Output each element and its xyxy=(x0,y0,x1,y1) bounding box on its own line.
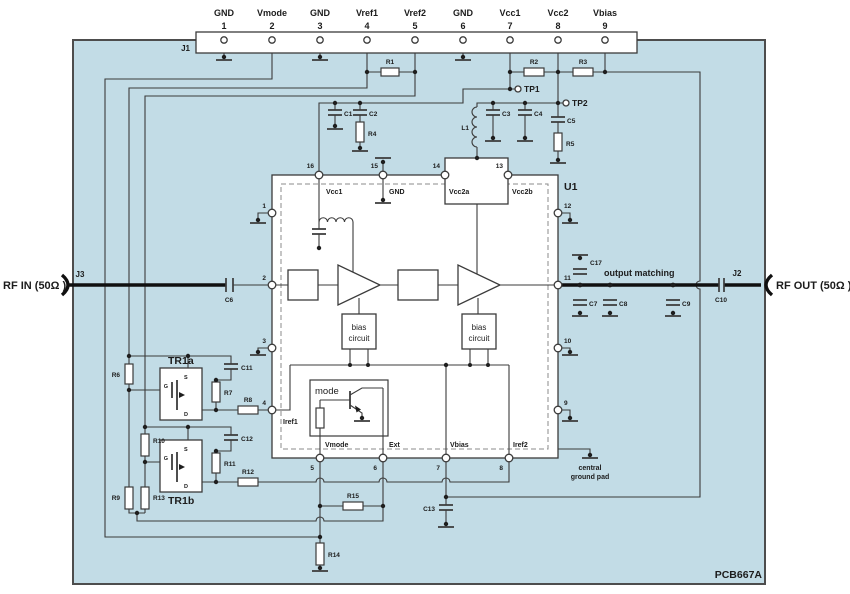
rf-in-label: RF IN (50Ω ) xyxy=(3,280,67,292)
svg-text:R4: R4 xyxy=(368,131,377,138)
svg-text:8: 8 xyxy=(499,465,503,472)
board-ref: PCB667A xyxy=(715,569,763,581)
svg-text:Ext: Ext xyxy=(389,442,401,449)
ic-u1 xyxy=(272,158,558,458)
resistor-r11 xyxy=(212,453,220,473)
svg-text:7: 7 xyxy=(436,465,440,472)
svg-text:1: 1 xyxy=(262,203,266,210)
svg-text:13: 13 xyxy=(496,163,504,170)
resistor-r15 xyxy=(343,502,363,510)
resistor-r12 xyxy=(238,478,258,486)
svg-text:S: S xyxy=(184,447,188,453)
svg-text:C17: C17 xyxy=(590,260,602,267)
svg-text:R5: R5 xyxy=(566,141,575,148)
svg-text:R9: R9 xyxy=(112,495,121,502)
svg-text:16: 16 xyxy=(307,163,315,170)
j1-pin-num: 6 xyxy=(460,21,465,31)
resistor-r10 xyxy=(141,434,149,456)
resistor-r3 xyxy=(573,68,593,76)
svg-text:4: 4 xyxy=(262,400,266,407)
svg-text:C5: C5 xyxy=(567,118,576,125)
svg-text:R7: R7 xyxy=(224,390,233,397)
svg-text:Vcc2a: Vcc2a xyxy=(449,189,469,196)
svg-text:14: 14 xyxy=(433,163,441,170)
j1-pin-num: 2 xyxy=(269,21,274,31)
svg-text:C7: C7 xyxy=(589,301,598,308)
svg-text:C3: C3 xyxy=(502,111,511,118)
j1-pin-name: Vbias xyxy=(593,8,617,18)
svg-text:10: 10 xyxy=(564,338,572,345)
j1-pin-name: Vref2 xyxy=(404,8,426,18)
svg-text:3: 3 xyxy=(262,338,266,345)
j2-ref: J2 xyxy=(733,269,742,278)
svg-text:L1: L1 xyxy=(461,125,469,132)
j1-pin-num: 5 xyxy=(412,21,417,31)
interstage-block xyxy=(398,270,438,300)
resistor-r8 xyxy=(238,406,258,414)
svg-text:D: D xyxy=(184,412,188,418)
transistor-tr1a xyxy=(160,368,202,420)
resistor-r6 xyxy=(125,364,133,384)
svg-text:ground pad: ground pad xyxy=(571,474,610,481)
j3-ref: J3 xyxy=(76,270,85,279)
svg-text:bias: bias xyxy=(472,323,487,332)
resistor-r14 xyxy=(316,543,324,565)
rf-out-connector-icon xyxy=(766,275,772,295)
svg-text:15: 15 xyxy=(371,163,379,170)
svg-text:2: 2 xyxy=(262,275,266,282)
svg-text:C6: C6 xyxy=(225,297,234,304)
svg-text:C2: C2 xyxy=(369,111,378,118)
svg-text:G: G xyxy=(164,384,168,390)
svg-text:central: central xyxy=(579,465,602,472)
mode-label: mode xyxy=(315,386,339,397)
svg-text:5: 5 xyxy=(310,465,314,472)
svg-text:R15: R15 xyxy=(347,493,359,500)
j1-ref: J1 xyxy=(181,44,190,53)
j1-pin-num: 1 xyxy=(221,21,226,31)
svg-text:9: 9 xyxy=(564,400,568,407)
svg-text:Vmode: Vmode xyxy=(325,442,348,449)
j1-pin-name: GND xyxy=(214,8,235,18)
svg-text:C9: C9 xyxy=(682,301,691,308)
j1-pin-num: 8 xyxy=(555,21,560,31)
svg-text:R8: R8 xyxy=(244,397,253,404)
svg-text:C11: C11 xyxy=(241,365,253,372)
output-matching-label: output matching xyxy=(604,268,675,278)
resistor-r4 xyxy=(356,122,364,142)
schematic-page: GND1 Vmode2 GND3 Vref14 Vref25 GND6 Vcc1… xyxy=(0,0,850,594)
j1-pin-name: GND xyxy=(310,8,331,18)
j1-pin-num: 7 xyxy=(507,21,512,31)
svg-text:GND: GND xyxy=(389,189,405,196)
svg-text:R14: R14 xyxy=(328,552,340,559)
transistor-tr1b xyxy=(160,440,202,492)
tp2-pad xyxy=(563,100,569,106)
svg-text:R12: R12 xyxy=(242,469,254,476)
svg-text:C4: C4 xyxy=(534,111,543,118)
tr1a-label: TR1a xyxy=(168,355,194,367)
ic-body xyxy=(272,175,558,458)
j1-pin-name: GND xyxy=(453,8,474,18)
ic-ref: U1 xyxy=(564,181,578,193)
resistor-r7 xyxy=(212,382,220,402)
svg-text:circuit: circuit xyxy=(349,334,371,343)
j1-pin-name: Vmode xyxy=(257,8,287,18)
mode-resistor xyxy=(316,408,324,428)
svg-text:R10: R10 xyxy=(153,438,165,445)
j1-pin-name: Vcc2 xyxy=(547,8,568,18)
resistor-r9 xyxy=(125,487,133,509)
j1-pin-num: 4 xyxy=(364,21,369,31)
svg-text:Iref2: Iref2 xyxy=(513,442,528,449)
resistor-r1 xyxy=(381,68,399,76)
svg-text:R11: R11 xyxy=(224,461,236,468)
svg-text:R2: R2 xyxy=(530,59,539,66)
svg-text:G: G xyxy=(164,456,168,462)
resistor-r2 xyxy=(524,68,544,76)
svg-text:S: S xyxy=(184,375,188,381)
svg-text:R6: R6 xyxy=(112,372,121,379)
tp1-pad xyxy=(515,86,521,92)
j1-pin-name: Vref1 xyxy=(356,8,378,18)
svg-text:bias: bias xyxy=(352,323,367,332)
svg-text:D: D xyxy=(184,484,188,490)
svg-text:C13: C13 xyxy=(423,506,435,513)
rf-out-label: RF OUT (50Ω ) xyxy=(776,280,850,292)
svg-text:Vcc1: Vcc1 xyxy=(326,189,342,196)
svg-text:R3: R3 xyxy=(579,59,588,66)
j1-pin-num: 3 xyxy=(317,21,322,31)
resistor-r13 xyxy=(141,487,149,509)
resistor-r5 xyxy=(554,133,562,151)
svg-text:circuit: circuit xyxy=(469,334,491,343)
svg-text:Vcc2b: Vcc2b xyxy=(512,189,533,196)
j1-pin-labels: GND1 Vmode2 GND3 Vref14 Vref25 GND6 Vcc1… xyxy=(214,8,617,31)
j1-pin-name: Vcc1 xyxy=(499,8,520,18)
input-match-block xyxy=(288,270,318,300)
svg-text:R13: R13 xyxy=(153,495,165,502)
tr1b-label: TR1b xyxy=(168,495,194,507)
svg-text:12: 12 xyxy=(564,203,572,210)
svg-text:C1: C1 xyxy=(344,111,353,118)
tp1-label: TP1 xyxy=(524,84,540,94)
j1-pin-num: 9 xyxy=(602,21,607,31)
tp2-label: TP2 xyxy=(572,98,588,108)
svg-text:R1: R1 xyxy=(386,59,395,66)
svg-text:Iref1: Iref1 xyxy=(283,419,298,426)
svg-text:C12: C12 xyxy=(241,436,253,443)
svg-text:C8: C8 xyxy=(619,301,628,308)
pcb-schematic: GND1 Vmode2 GND3 Vref14 Vref25 GND6 Vcc1… xyxy=(0,0,850,594)
svg-text:Vbias: Vbias xyxy=(450,442,469,449)
svg-text:11: 11 xyxy=(564,275,571,282)
svg-text:6: 6 xyxy=(373,465,377,472)
svg-text:C10: C10 xyxy=(715,297,727,304)
